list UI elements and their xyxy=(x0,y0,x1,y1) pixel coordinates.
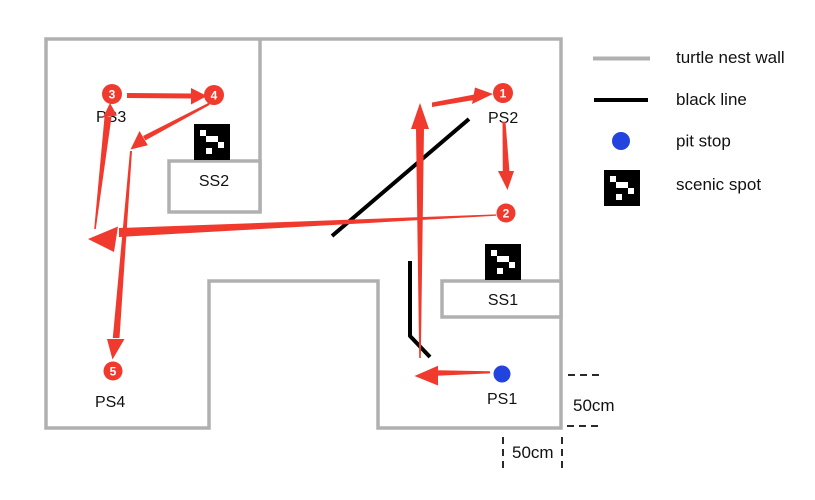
route-arrow-to-1-shaft xyxy=(432,94,477,107)
turtle-nest-course-diagram: PS3 PS2 PS1 PS4 SS2 SS1 xyxy=(0,0,815,500)
route-arrow-1-to-2-head xyxy=(498,171,514,190)
route-arrow-up-corridor-shaft xyxy=(416,128,424,358)
route-arrow-ps1-left-shaft xyxy=(437,370,490,376)
waypoint-3-number: 3 xyxy=(109,88,116,102)
dimension-annotations: 50cm 50cm xyxy=(503,375,615,473)
route-arrow-up-corridor-head xyxy=(411,103,429,129)
route-arrow-2-to-wall-head xyxy=(88,227,118,253)
route-arrow-to-5-shaft xyxy=(113,151,132,338)
legend-pit-stop-swatch xyxy=(612,132,630,150)
route-arrow-1-to-2-shaft xyxy=(503,122,510,172)
waypoint-marker-3: 3 xyxy=(102,84,122,104)
waypoint-marker-4: 4 xyxy=(204,85,224,105)
ss1-label: SS1 xyxy=(488,292,518,309)
route-arrow-to-5-head xyxy=(107,339,125,360)
legend-pit-stop-label: pit stop xyxy=(676,132,731,151)
ps4-label: PS4 xyxy=(95,394,125,411)
legend-item-pit-stop: pit stop xyxy=(612,132,731,151)
route-arrows xyxy=(88,88,514,386)
legend-item-scenic-spot: scenic spot xyxy=(604,170,761,206)
legend-wall-label: turtle nest wall xyxy=(676,48,785,67)
legend-item-black-line: black line xyxy=(594,90,747,109)
route-arrow-2-to-wall-shaft xyxy=(119,214,496,237)
legend-item-turtle-nest-wall: turtle nest wall xyxy=(593,48,785,67)
legend-black-line-label: black line xyxy=(676,90,747,109)
waypoint-2-number: 2 xyxy=(503,207,510,221)
pit-stop-ps1-dot xyxy=(494,366,511,383)
route-arrow-to-1-head xyxy=(472,88,493,105)
legend-scenic-spot-label: scenic spot xyxy=(676,175,761,194)
ss2-label: SS2 xyxy=(199,173,229,190)
route-arrow-4-turn-head xyxy=(131,131,148,150)
waypoint-marker-2: 2 xyxy=(497,204,516,223)
waypoint-4-number: 4 xyxy=(211,89,218,103)
route-arrow-wall-to-3-shaft xyxy=(94,117,111,229)
route-arrow-ps1-left-head xyxy=(415,366,439,386)
black-lines xyxy=(332,119,469,357)
dim-label-bottom: 50cm xyxy=(512,443,554,462)
dim-label-right: 50cm xyxy=(573,396,615,415)
legend-scenic-spot-swatch xyxy=(604,170,640,206)
scenic-spot-marker-ss2 xyxy=(194,124,230,160)
scenic-spot-marker-ss1 xyxy=(485,244,521,280)
ps1-label: PS1 xyxy=(487,391,517,408)
waypoint-marker-1: 1 xyxy=(493,83,513,103)
legend: turtle nest wall black line pit stop sce… xyxy=(593,48,785,206)
waypoint-marker-5: 5 xyxy=(104,362,123,381)
station-labels: PS3 PS2 PS1 PS4 SS2 SS1 xyxy=(95,109,518,411)
waypoint-1-number: 1 xyxy=(500,87,507,101)
route-arrow-3-to-4-shaft xyxy=(127,93,192,99)
waypoint-5-number: 5 xyxy=(110,365,117,379)
